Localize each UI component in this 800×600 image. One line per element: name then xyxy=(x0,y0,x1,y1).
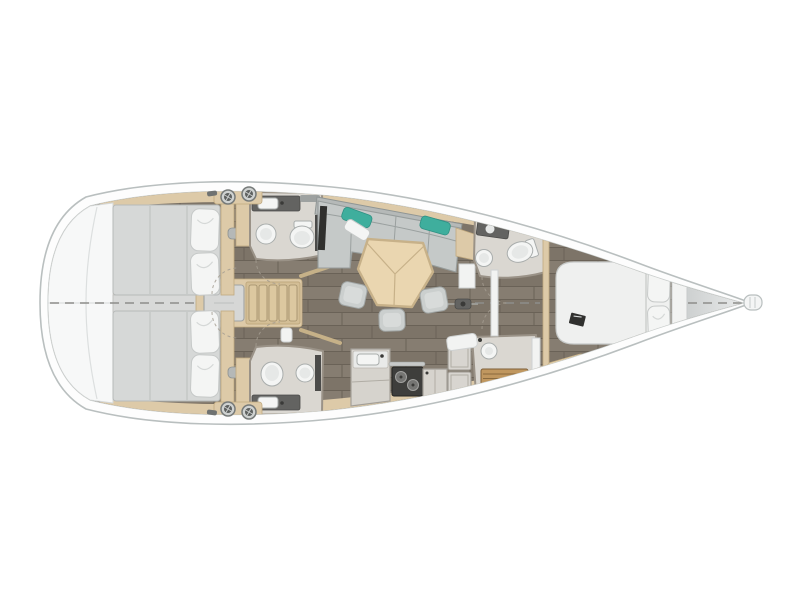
stool xyxy=(379,309,406,332)
stove xyxy=(392,367,423,396)
stove-rail xyxy=(389,362,425,366)
floor-hatch xyxy=(281,328,292,342)
aft-cabin-top xyxy=(113,203,248,295)
bow-anchor-fitting xyxy=(744,295,762,310)
bow-lockers xyxy=(672,250,687,356)
pillow xyxy=(190,253,219,296)
stool xyxy=(419,286,449,314)
stool xyxy=(338,281,368,310)
cabin-door xyxy=(491,270,498,336)
boat-floor-plan xyxy=(0,0,800,600)
bed-head-shelf xyxy=(221,311,234,403)
side-cabinet xyxy=(456,228,474,260)
boat-floor-plan-stage xyxy=(0,0,800,600)
aft-cabin-bottom xyxy=(113,311,248,403)
galley-sink xyxy=(357,354,379,365)
toilet xyxy=(261,362,283,386)
faucet xyxy=(280,201,284,205)
pillow xyxy=(190,209,219,252)
bed-head-shelf xyxy=(221,203,234,295)
faucet xyxy=(380,354,384,358)
faucet xyxy=(280,401,284,405)
bulkhead xyxy=(543,226,549,380)
toilet xyxy=(290,221,314,248)
bow-deck xyxy=(687,252,745,354)
sofa-locker xyxy=(459,264,475,288)
pillow xyxy=(190,311,219,354)
pillow xyxy=(190,355,219,398)
